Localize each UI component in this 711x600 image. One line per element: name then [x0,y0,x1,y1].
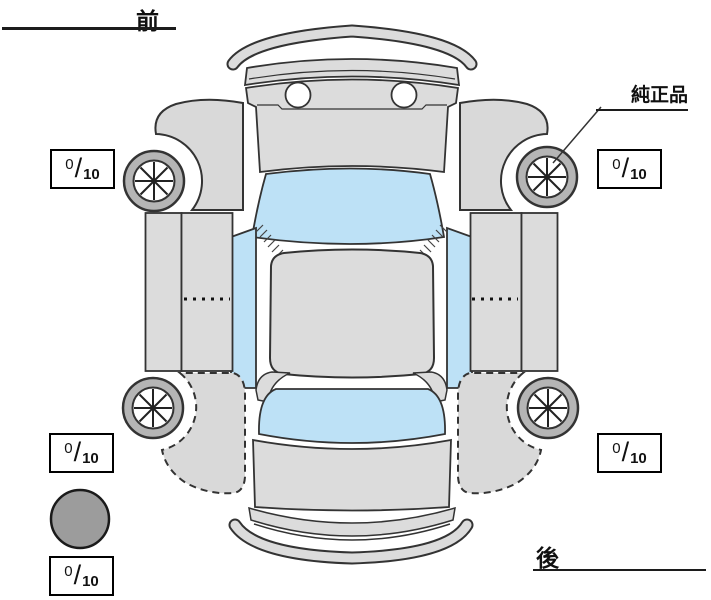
tread-box-spare: 0 / 10 [49,556,114,596]
headlight-left-icon [286,83,311,108]
rear-label: 後 [536,539,559,573]
tread-box-front-left: 0 / 10 [50,149,115,189]
genuine-part-label: 純正品 [596,80,688,111]
tread-max: 10 [82,450,99,467]
hood-panel [246,80,458,173]
right-door-panel [471,213,522,371]
wheel-rear-left-icon [123,378,183,438]
fraction-slash: / [75,155,83,182]
tread-box-front-right: 0 / 10 [597,149,662,189]
tread-value: 0 [612,440,620,457]
tread-value: 0 [64,563,72,580]
tread-max: 10 [630,166,647,183]
trunk-panel [253,440,451,511]
right-sill-strip [522,213,558,371]
left-sill-strip [146,213,182,371]
tread-box-rear-left: 0 / 10 [49,433,114,473]
side-window-left-glass [231,228,256,388]
front-underline [2,27,176,30]
left-door-panel [182,213,233,371]
spare-tire-icon [51,490,109,548]
tread-value: 0 [64,440,72,457]
tread-box-rear-right: 0 / 10 [597,433,662,473]
tread-value: 0 [612,156,620,173]
side-window-right-glass [447,228,472,388]
wheel-rear-right-icon [518,378,578,438]
rear-underline [533,569,706,571]
front-label: 前 [136,2,159,36]
fraction-slash: / [74,562,82,589]
fraction-slash: / [74,439,82,466]
tread-max: 10 [82,573,99,590]
headlight-right-icon [392,83,417,108]
genuine-part-pointer-line [553,107,601,163]
fraction-slash: / [622,155,630,182]
windshield-glass [252,169,444,245]
wheel-front-left-icon [124,151,184,211]
tread-value: 0 [65,156,73,173]
rear-window-glass [259,389,445,443]
fraction-slash: / [622,439,630,466]
vehicle-inspection-diagram: 前 後 純正品 0 / 10 0 / 10 0 / 10 0 / 10 0 / … [0,0,711,600]
wheel-front-right-icon [517,147,577,207]
roof-panel [270,250,434,378]
tread-max: 10 [630,450,647,467]
tread-max: 10 [83,166,100,183]
